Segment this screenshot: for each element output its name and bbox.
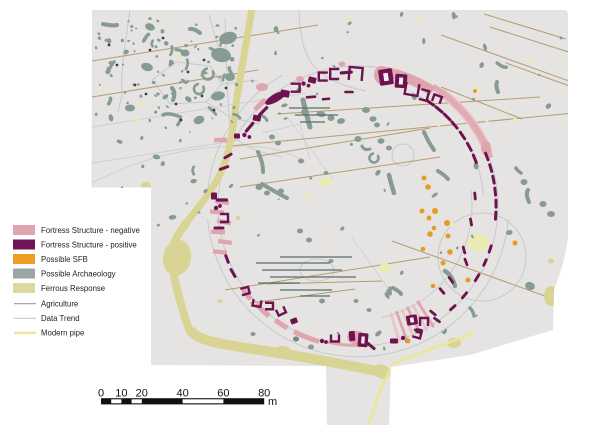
svg-text:Possible Archaeology: Possible Archaeology — [41, 269, 116, 278]
svg-text:Modern pipe: Modern pipe — [41, 329, 84, 338]
svg-text:10: 10 — [115, 388, 127, 400]
svg-text:Ferrous Response: Ferrous Response — [41, 284, 105, 293]
svg-text:Fortress Structure - positive: Fortress Structure - positive — [41, 240, 137, 249]
svg-text:0: 0 — [98, 388, 104, 400]
svg-text:Data Trend: Data Trend — [41, 314, 80, 323]
svg-text:20: 20 — [136, 388, 148, 400]
svg-text:Fortress Structure - negative: Fortress Structure - negative — [41, 226, 140, 235]
svg-text:60: 60 — [217, 388, 229, 400]
svg-text:Agriculture: Agriculture — [41, 299, 78, 308]
svg-text:m: m — [268, 396, 277, 408]
svg-text:Possible SFB: Possible SFB — [41, 255, 88, 264]
svg-text:40: 40 — [176, 388, 188, 400]
